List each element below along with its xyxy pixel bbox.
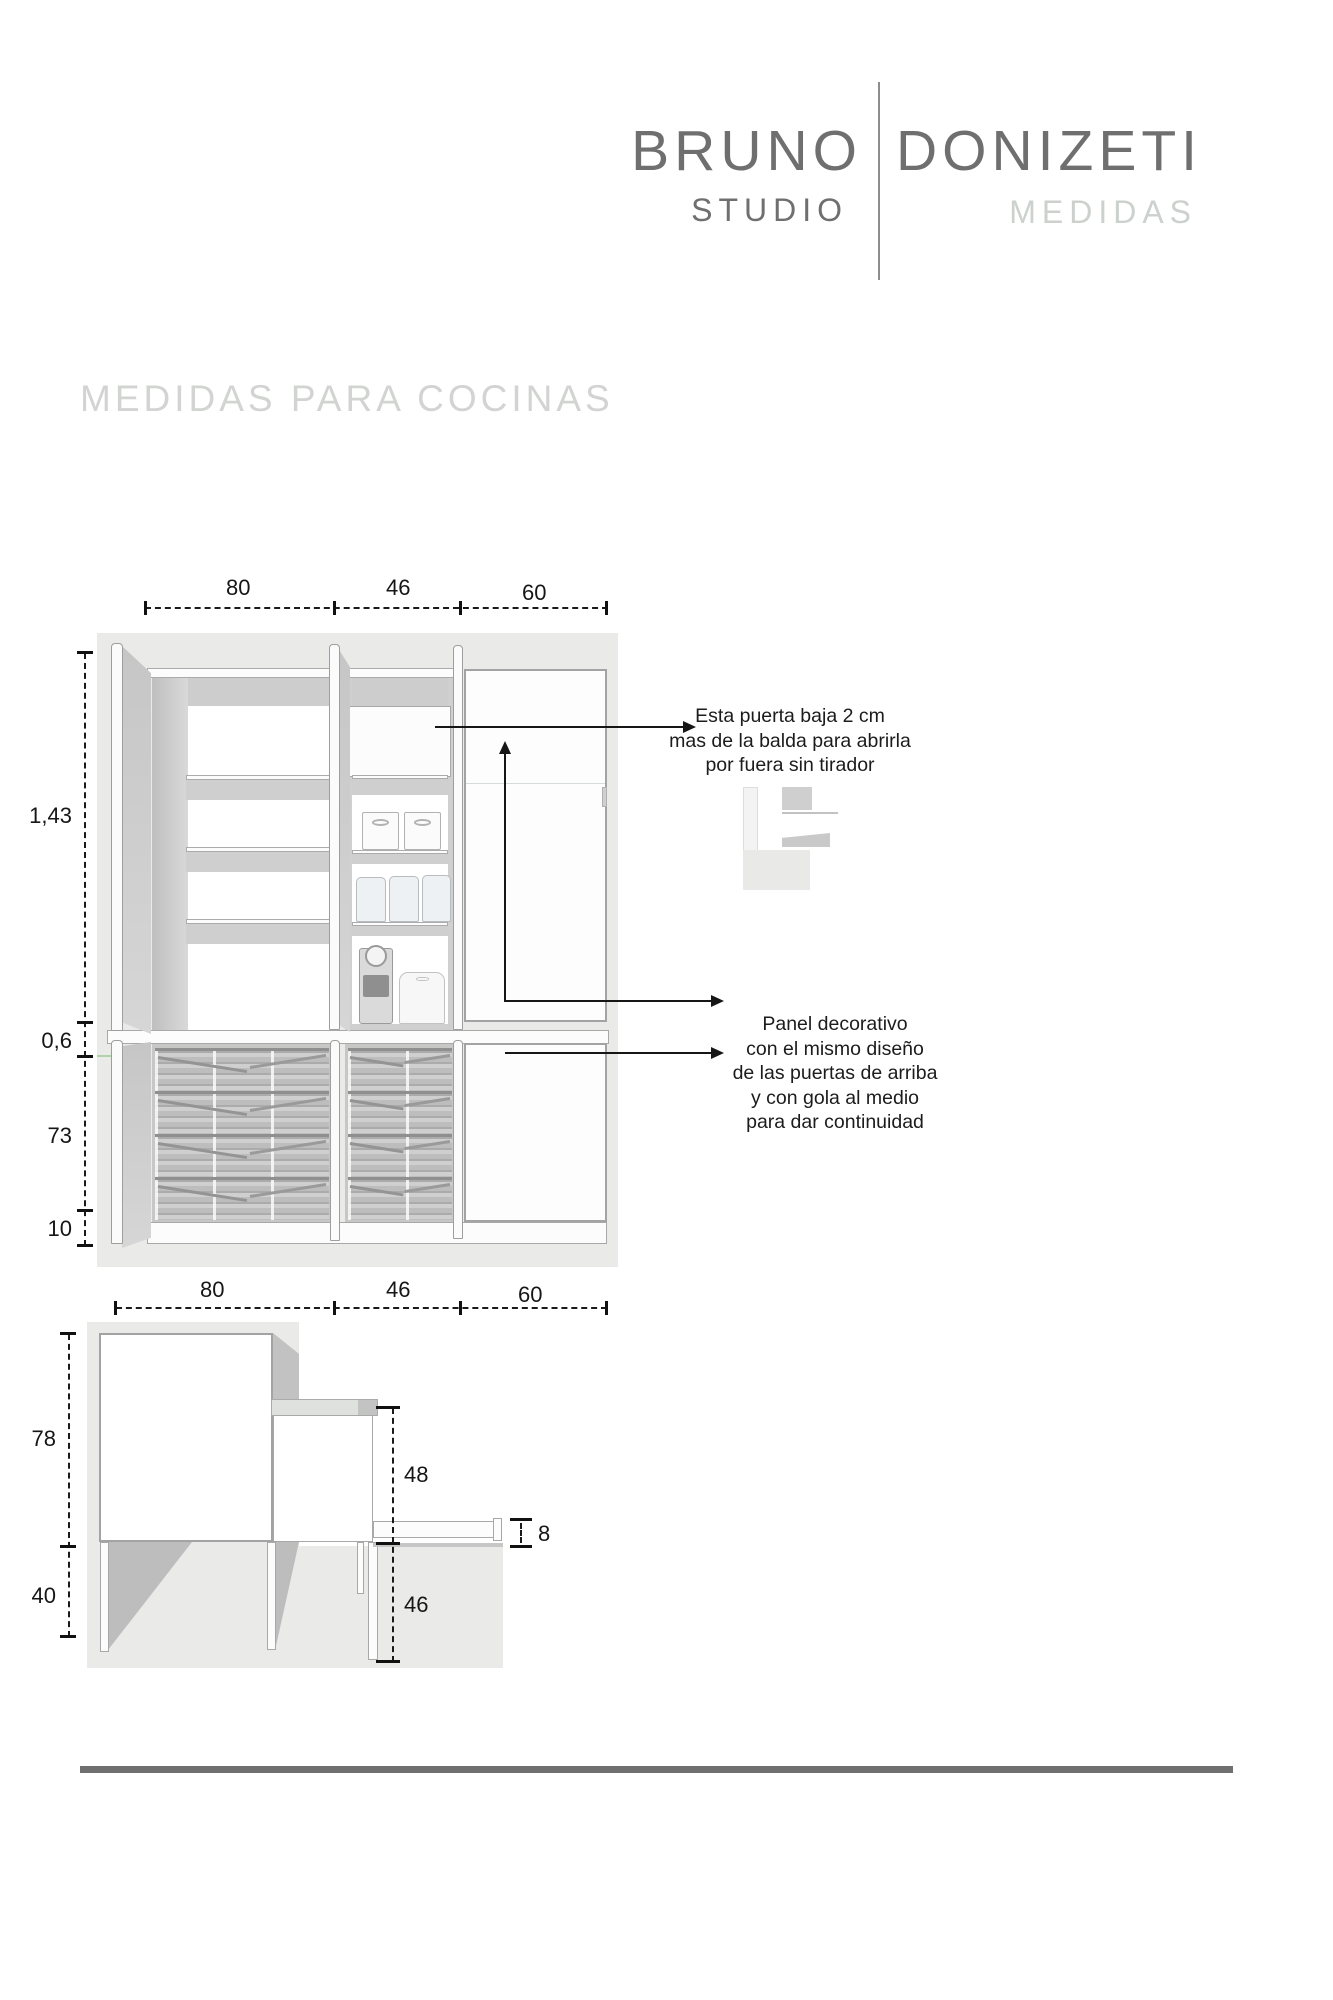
dim-tick [144,601,147,615]
side-height-dim-line [68,1334,70,1637]
front-dim-10: 10 [16,1216,72,1242]
cabinet-soffit [345,678,455,706]
thickness-dim-line [520,1523,522,1543]
front-dim-46: 46 [386,575,410,601]
wire-basket [348,1091,452,1134]
dim-tick [77,651,93,654]
right-door-edge-lower [453,1040,463,1239]
door-note: Esta puerta baja 2 cm mas de la balda pa… [660,704,920,778]
door-note-line2: mas de la balda para abrirla [660,729,920,754]
front-dim-60: 60 [522,580,546,606]
side-view-drawing: 80 46 60 78 40 48 [0,1260,1333,1720]
dim-tick [605,601,608,615]
dim-tick [77,1021,93,1024]
wire-basket [348,1048,452,1091]
door-note-line3: por fuera sin tirador [660,753,920,778]
front-view-drawing: 80 46 60 1,43 0,6 73 10 [0,0,1333,1320]
dim-tick [60,1545,76,1548]
shelf-surface [186,852,332,872]
panel-note-line4: y con gola al medio [710,1086,960,1111]
detail-door-edge [743,787,758,851]
side-dim-48: 48 [404,1462,428,1488]
tall-box-side [99,1333,273,1542]
panel-note-line5: para dar continuidad [710,1110,960,1135]
plinth [147,1222,607,1244]
dim-tick [510,1518,532,1521]
front-dim-143: 1,43 [16,803,72,829]
panel-note-line1: Panel decorativo [710,1012,960,1037]
dim-tick [376,1406,400,1409]
page: BRUNO STUDIO DONIZETI MEDIDAS MEDIDAS PA… [0,0,1333,2000]
shelf-surface [186,924,332,944]
side-dim-40: 40 [0,1583,56,1609]
wire-basket [155,1048,329,1091]
inner-dim-line [392,1408,394,1662]
panel-note-line2: con el mismo diseño [710,1037,960,1062]
toaster-slot [416,977,429,981]
dim-tick [376,1660,400,1663]
front-width-dim-line [145,607,608,609]
side-dim-46: 46 [386,1277,410,1303]
dim-tick [333,601,336,615]
pullout-shelf-cap [493,1518,502,1541]
storage-box [404,812,441,850]
footer-bar [80,1766,1233,1773]
front-height-dim-line [84,653,86,1246]
wire-basket [155,1177,329,1220]
detail-door-lower [743,850,810,890]
wire-basket [155,1134,329,1177]
right-door-edge [453,645,463,1030]
dim-tick [77,1055,93,1058]
wire-basket [348,1177,452,1220]
leg [100,1542,109,1652]
dim-tick [77,1244,93,1247]
panel-note-hline1 [504,1000,712,1002]
front-dim-80: 80 [226,575,250,601]
base-box-side [273,1415,373,1542]
panel-note-hline2 [505,1052,712,1054]
coffee-machine [359,948,393,1024]
decorative-panel [464,1043,607,1222]
dim-tick [60,1635,76,1638]
detail-shelf-line [782,812,838,814]
panel-note: Panel decorativo con el mismo diseño de … [710,1012,960,1135]
jar [389,876,419,922]
detail-shelf [782,833,830,847]
shelf-surface [352,854,448,864]
dim-tick [605,1301,608,1315]
cabinet-top-edge [147,668,333,678]
shelf-surface [352,926,448,936]
side-dim-78: 78 [0,1426,56,1452]
detail-cabinet-top [782,787,812,810]
dim-tick [510,1545,532,1548]
dim-tick [114,1301,117,1315]
shelf-surface [352,779,448,795]
dim-tick [60,1332,76,1335]
front-dim-73: 73 [16,1123,72,1149]
side-dim-46b: 46 [404,1592,428,1618]
coffee-machine-body [363,975,389,997]
tall-door-joint [466,783,605,784]
panel-note-vline [504,753,506,1002]
mid-door-edge [329,644,340,1030]
box-handle-cutout [414,819,431,826]
dim-tick [333,1301,336,1315]
mid-door-edge-lower [330,1040,340,1241]
leg [357,1542,364,1594]
worktop-band [107,1030,609,1044]
dim-tick [459,1301,462,1315]
base-box-top-corner [358,1400,377,1415]
door-hinge [602,787,607,807]
door-note-line [435,726,685,728]
wire-basket [155,1091,329,1134]
box-handle-cutout [372,819,389,826]
side-dim-80: 80 [200,1277,224,1303]
jar [356,877,386,922]
coffee-machine-head [365,945,387,967]
dim-tick [77,1209,93,1212]
panel-note-arrowhead-up [499,741,511,754]
door-detail-sketch [740,785,840,893]
jar [422,875,451,922]
dim-tick [376,1542,400,1545]
storage-box [362,812,399,850]
side-dim-8: 8 [538,1521,550,1547]
left-door-edge [111,643,123,1031]
left-door-face [122,646,151,1034]
panel-note-line3: de las puertas de arriba [710,1061,960,1086]
leg [368,1542,378,1660]
left-door-edge-lower [111,1040,123,1244]
side-dim-60: 60 [518,1282,542,1308]
shelf-surface [186,780,332,800]
handleless-door [349,706,451,777]
left-door-face-lower [122,1042,151,1248]
leg [267,1542,276,1650]
tall-door-right [464,669,607,1022]
toaster [399,972,445,1024]
dim-tick [459,601,462,615]
cabinet-side-panel [152,678,188,1030]
front-dim-06: 0,6 [16,1028,72,1054]
door-note-line1: Esta puerta baja 2 cm [660,704,920,729]
cabinet-top-edge [345,668,456,678]
panel-note-arrowhead1 [711,995,724,1007]
wire-basket [348,1134,452,1177]
